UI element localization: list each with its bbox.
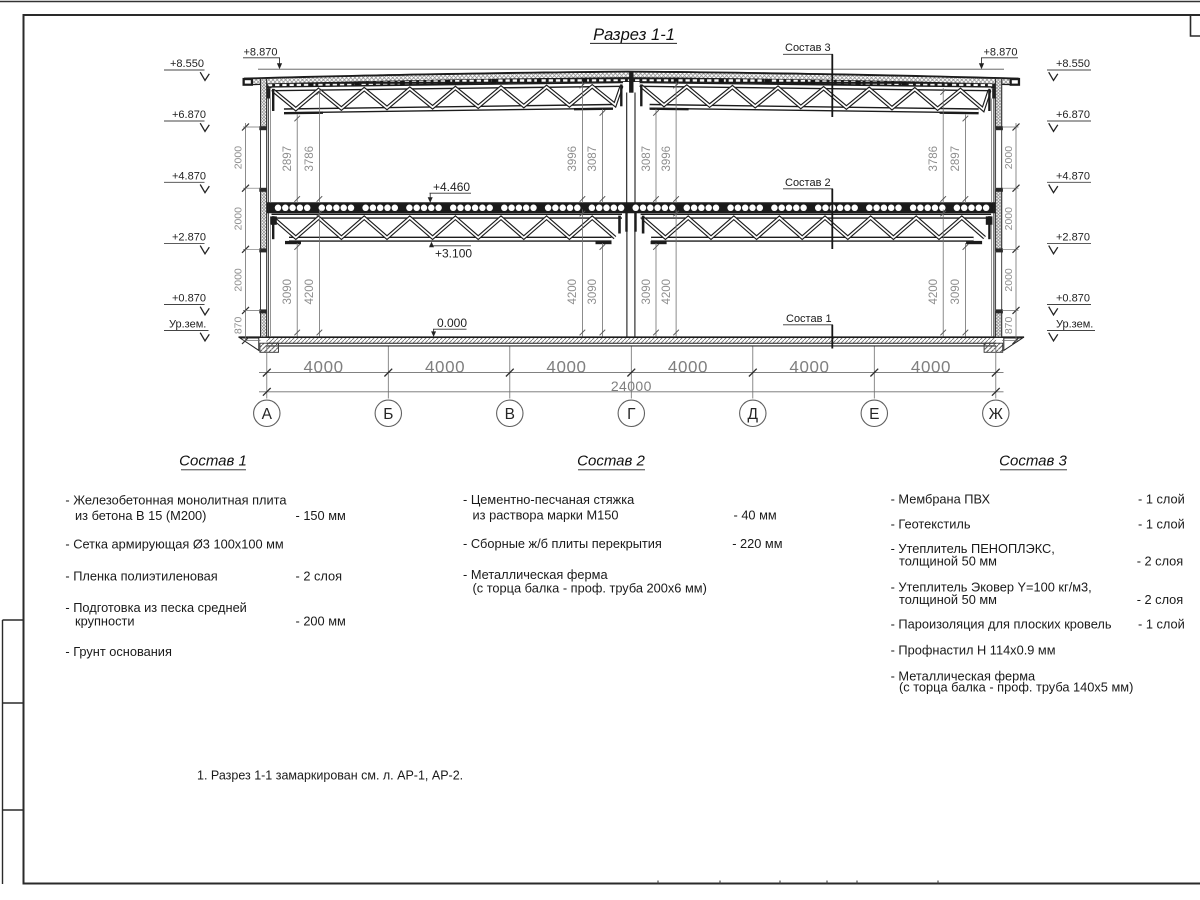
svg-text:2000: 2000 bbox=[233, 207, 245, 231]
svg-text:Состав 1: Состав 1 bbox=[786, 313, 832, 325]
svg-text:2000: 2000 bbox=[1003, 207, 1015, 231]
svg-text:4000: 4000 bbox=[789, 357, 829, 376]
svg-text:3786: 3786 bbox=[928, 146, 940, 172]
svg-text:- Сетка армирующая Ø3 100х100: - Сетка армирующая Ø3 100х100 мм bbox=[65, 537, 283, 552]
svg-text:1. Разрез 1-1 замаркирован см.: 1. Разрез 1-1 замаркирован см. л. АР-1, … bbox=[197, 769, 463, 783]
svg-text:4000: 4000 bbox=[425, 357, 465, 376]
svg-text:+4.870: +4.870 bbox=[1056, 170, 1090, 182]
svg-text:из раствора марки М150: из раствора марки М150 bbox=[473, 508, 619, 523]
svg-text:- Сборные ж/б плиты перекрытия: - Сборные ж/б плиты перекрытия bbox=[463, 536, 662, 551]
svg-text:2000: 2000 bbox=[233, 146, 245, 170]
svg-text:3090: 3090 bbox=[282, 279, 294, 305]
svg-text:- Грунт основания: - Грунт основания bbox=[65, 644, 172, 659]
svg-text:4000: 4000 bbox=[303, 357, 343, 376]
svg-text:4000: 4000 bbox=[668, 357, 708, 376]
svg-text:- 200 мм: - 200 мм bbox=[296, 614, 346, 629]
svg-text:Разрез 1-1: Разрез 1-1 bbox=[593, 26, 675, 44]
svg-text:- Пленка полиэтиленовая: - Пленка полиэтиленовая bbox=[65, 569, 217, 584]
svg-text:0.000: 0.000 bbox=[437, 316, 467, 330]
svg-text:(с торца балка - проф. труба 1: (с торца балка - проф. труба 140х5 мм) bbox=[899, 680, 1133, 695]
svg-text:- Мембрана ПВХ: - Мембрана ПВХ bbox=[891, 491, 991, 506]
svg-text:3087: 3087 bbox=[641, 146, 653, 172]
svg-text:из бетона В 15 (М200): из бетона В 15 (М200) bbox=[75, 508, 206, 523]
svg-text:4000: 4000 bbox=[911, 357, 951, 376]
svg-text:- Цементно-песчаная стяжка: - Цементно-песчаная стяжка bbox=[463, 492, 635, 507]
svg-text:Состав 2: Состав 2 bbox=[785, 177, 831, 189]
svg-text:- Профнастил Н 114х0.9 мм: - Профнастил Н 114х0.9 мм bbox=[891, 643, 1056, 658]
svg-text:(с торца балка - проф. труба 2: (с торца балка - проф. труба 200х6 мм) bbox=[473, 580, 707, 595]
svg-text:+8.550: +8.550 bbox=[170, 58, 204, 70]
svg-text:- 150 мм: - 150 мм bbox=[296, 508, 346, 523]
svg-text:- 40 мм: - 40 мм bbox=[734, 508, 777, 523]
svg-text:Ур.зем.: Ур.зем. bbox=[169, 319, 206, 331]
svg-text:Д: Д bbox=[748, 406, 759, 423]
svg-text:4200: 4200 bbox=[661, 279, 673, 305]
svg-text:крупности: крупности bbox=[75, 614, 135, 629]
svg-text:- 2 слоя: - 2 слоя bbox=[1137, 554, 1184, 569]
svg-text:толщиной 50 мм: толщиной 50 мм bbox=[899, 554, 997, 569]
svg-text:- Железобетонная монолитная п: - Железобетонная монолитная плита bbox=[65, 493, 287, 508]
svg-text:- 2 слоя: - 2 слоя bbox=[1137, 592, 1184, 607]
svg-text:+8.870: +8.870 bbox=[244, 47, 278, 59]
svg-text:Б: Б bbox=[383, 406, 393, 423]
svg-text:Е: Е bbox=[869, 406, 879, 423]
svg-text:+2.870: +2.870 bbox=[1056, 231, 1090, 243]
svg-text:870: 870 bbox=[233, 316, 245, 334]
svg-text:4200: 4200 bbox=[567, 279, 579, 305]
svg-text:Состав 3: Состав 3 bbox=[785, 42, 831, 54]
svg-text:4200: 4200 bbox=[928, 279, 940, 305]
svg-text:3996: 3996 bbox=[567, 146, 579, 172]
svg-text:4000: 4000 bbox=[546, 357, 586, 376]
svg-text:870: 870 bbox=[1003, 316, 1015, 334]
svg-text:- 1 слой: - 1 слой bbox=[1138, 491, 1185, 506]
svg-text:+8.870: +8.870 bbox=[984, 47, 1018, 59]
svg-text:В: В bbox=[505, 406, 515, 423]
svg-text:Состав 2: Состав 2 bbox=[577, 453, 645, 470]
svg-text:толщиной 50 мм: толщиной 50 мм bbox=[899, 592, 997, 607]
svg-text:А: А bbox=[262, 406, 273, 423]
svg-text:4200: 4200 bbox=[304, 279, 316, 305]
svg-text:+2.870: +2.870 bbox=[172, 231, 206, 243]
svg-text:- 2 слоя: - 2 слоя bbox=[296, 569, 343, 584]
svg-text:24000: 24000 bbox=[611, 378, 652, 394]
svg-text:3090: 3090 bbox=[587, 279, 599, 305]
svg-text:- 1 слой: - 1 слой bbox=[1138, 617, 1185, 632]
svg-text:+3.100: +3.100 bbox=[435, 247, 472, 261]
svg-text:+0.870: +0.870 bbox=[172, 293, 206, 305]
svg-text:2000: 2000 bbox=[233, 268, 245, 292]
svg-text:3087: 3087 bbox=[587, 146, 599, 172]
svg-text:2000: 2000 bbox=[1003, 268, 1015, 292]
svg-text:3090: 3090 bbox=[950, 279, 962, 305]
svg-text:+0.870: +0.870 bbox=[1056, 293, 1090, 305]
svg-text:+4.460: +4.460 bbox=[433, 180, 470, 194]
svg-text:+4.870: +4.870 bbox=[172, 170, 206, 182]
svg-text:Г: Г bbox=[627, 406, 636, 423]
svg-text:- Пароизоляция для плоских кро: - Пароизоляция для плоских кровель bbox=[891, 617, 1112, 632]
svg-text:Состав 3: Состав 3 bbox=[999, 453, 1067, 470]
svg-text:Состав 1: Состав 1 bbox=[179, 453, 247, 470]
svg-text:- Геотекстиль: - Геотекстиль bbox=[891, 517, 971, 532]
svg-text:Ур.зем.: Ур.зем. bbox=[1056, 319, 1093, 331]
svg-text:3786: 3786 bbox=[304, 146, 316, 172]
svg-text:+6.870: +6.870 bbox=[172, 109, 206, 121]
svg-text:2897: 2897 bbox=[282, 146, 294, 172]
svg-text:Ж: Ж bbox=[989, 406, 1004, 423]
svg-text:2897: 2897 bbox=[950, 146, 962, 172]
svg-text:2000: 2000 bbox=[1003, 146, 1015, 170]
svg-text:+6.870: +6.870 bbox=[1056, 109, 1090, 121]
svg-text:3090: 3090 bbox=[641, 279, 653, 305]
svg-text:- 220 мм: - 220 мм bbox=[732, 536, 782, 551]
svg-text:- 1 слой: - 1 слой bbox=[1138, 517, 1185, 532]
svg-text:+8.550: +8.550 bbox=[1056, 58, 1090, 70]
svg-text:3996: 3996 bbox=[661, 146, 673, 172]
